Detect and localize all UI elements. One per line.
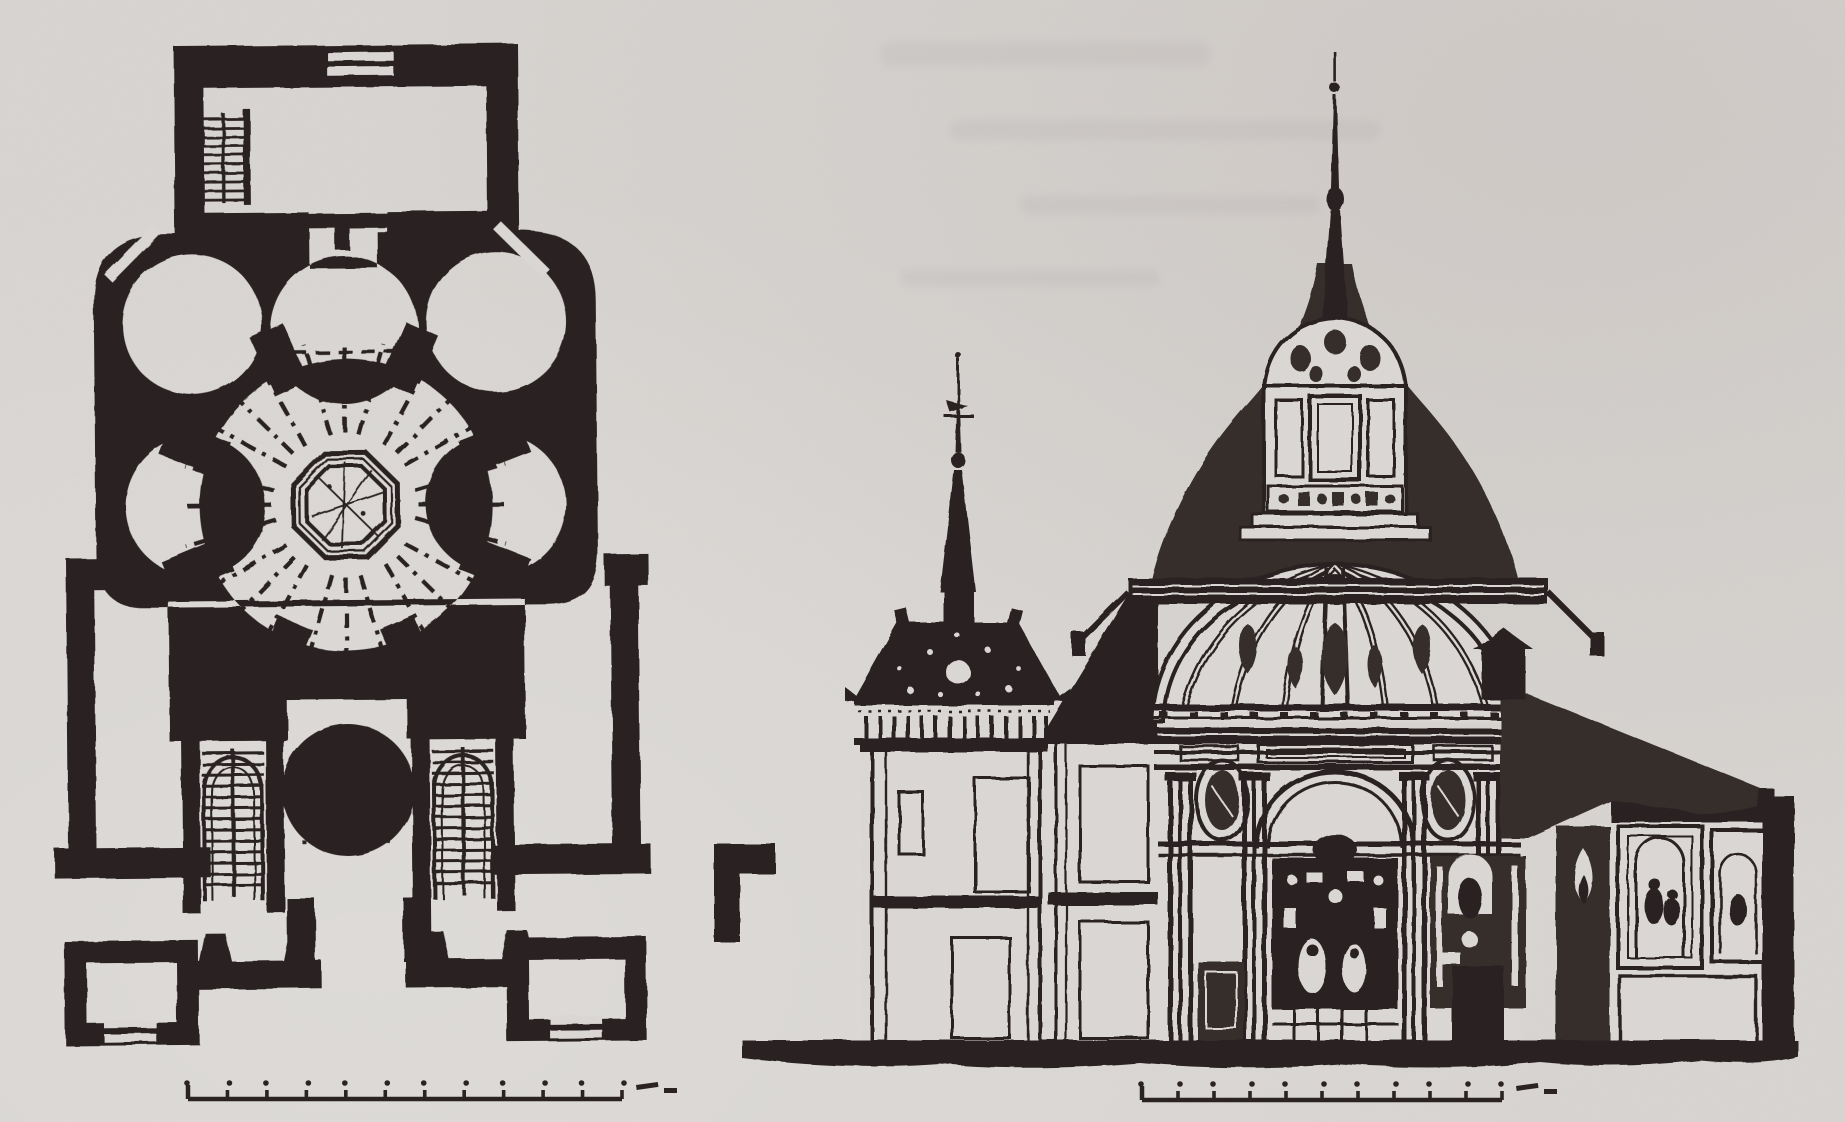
dome-base-ring: [1146, 704, 1524, 734]
figure-canvas: [0, 0, 1845, 1122]
section-right-chapel: [1610, 796, 1794, 1046]
main-altarpiece: [1272, 834, 1398, 1042]
plan-top-window-slit: [328, 52, 394, 62]
section-flame-pier: [1556, 826, 1610, 1044]
section-ground-line: [742, 1040, 1798, 1068]
plan-top-window-slit: [328, 67, 394, 77]
scanned-page: [0, 0, 1845, 1122]
